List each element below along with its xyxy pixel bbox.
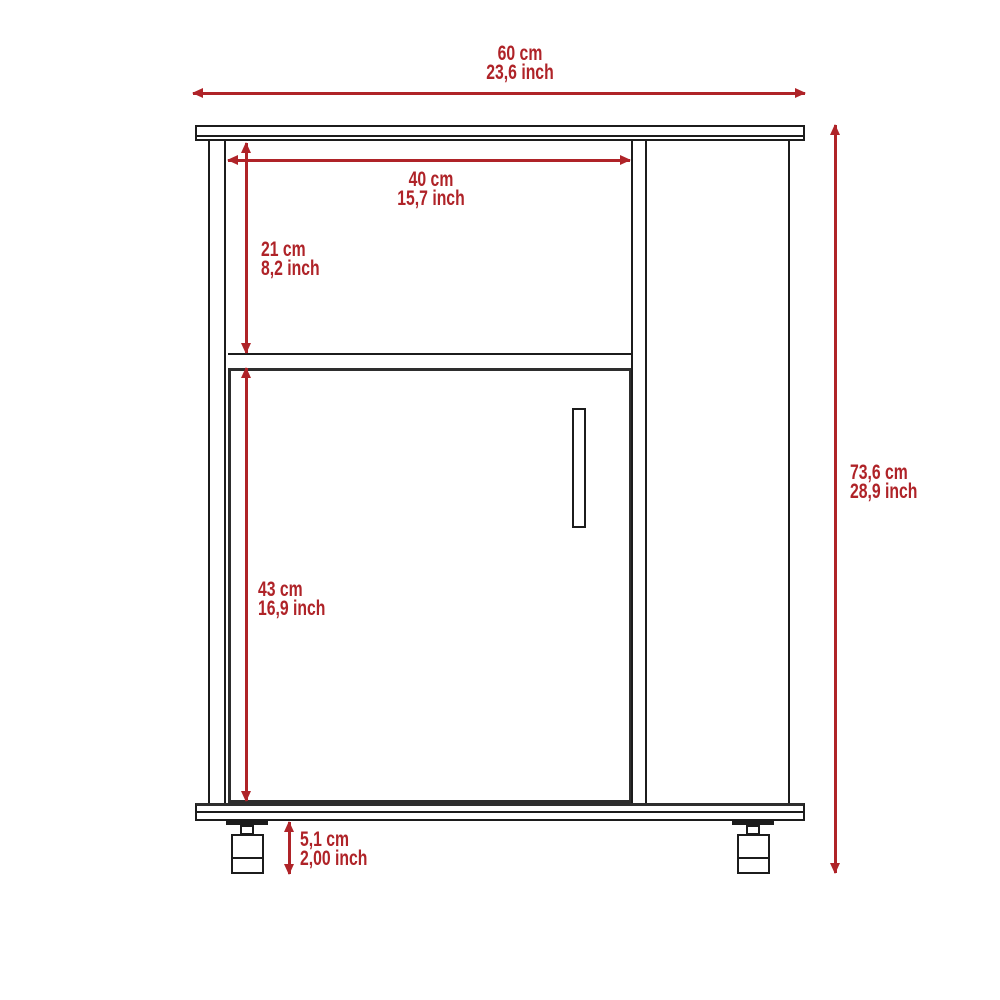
opening-width-dimension-label: 40 cm 15,7 inch <box>371 170 491 208</box>
left-side-panel-inner-line <box>224 141 226 803</box>
caster-height-dimension-label: 5,1 cm 2,00 inch <box>300 830 367 868</box>
door-height-dimension-label: 43 cm 16,9 inch <box>258 580 325 618</box>
opening-height-inch: 8,2 inch <box>261 259 320 278</box>
cabinet-bottom-panel-edge-line <box>197 811 803 813</box>
opening-height-dimension-label: 21 cm 8,2 inch <box>261 240 320 278</box>
opening-height-dimension-arrow <box>245 143 248 353</box>
right-caster-wheel <box>737 834 770 874</box>
overall-height-dimension-arrow <box>834 125 837 873</box>
caster-height-dimension-arrow <box>288 822 291 874</box>
cabinet-dimension-diagram: 60 cm 23,6 inch 40 cm 15,7 inch 21 cm 8,… <box>0 0 1000 1000</box>
cabinet-top-panel-edge-line <box>197 135 803 137</box>
divider-panel-right-line <box>645 141 647 803</box>
opening-width-dimension-arrow <box>228 159 630 162</box>
door-handle <box>572 408 586 528</box>
opening-width-inch: 15,7 inch <box>371 189 491 208</box>
shelf-line <box>228 353 632 355</box>
left-caster-wheel <box>231 834 264 874</box>
overall-width-dimension-label: 60 cm 23,6 inch <box>460 44 580 82</box>
divider-panel-left-line <box>631 141 633 803</box>
cabinet-top-panel <box>195 125 805 141</box>
overall-width-inch: 23,6 inch <box>460 63 580 82</box>
door-height-inch: 16,9 inch <box>258 599 325 618</box>
door-height-dimension-arrow <box>245 368 248 801</box>
overall-height-inch: 28,9 inch <box>850 482 917 501</box>
overall-height-dimension-label: 73,6 cm 28,9 inch <box>850 463 917 501</box>
left-side-panel-outer-line <box>208 141 210 803</box>
right-caster-wheel-line <box>739 857 768 859</box>
right-side-panel-line <box>788 141 790 803</box>
left-caster-wheel-line <box>233 857 262 859</box>
overall-width-dimension-arrow <box>193 92 805 95</box>
caster-height-inch: 2,00 inch <box>300 849 367 868</box>
